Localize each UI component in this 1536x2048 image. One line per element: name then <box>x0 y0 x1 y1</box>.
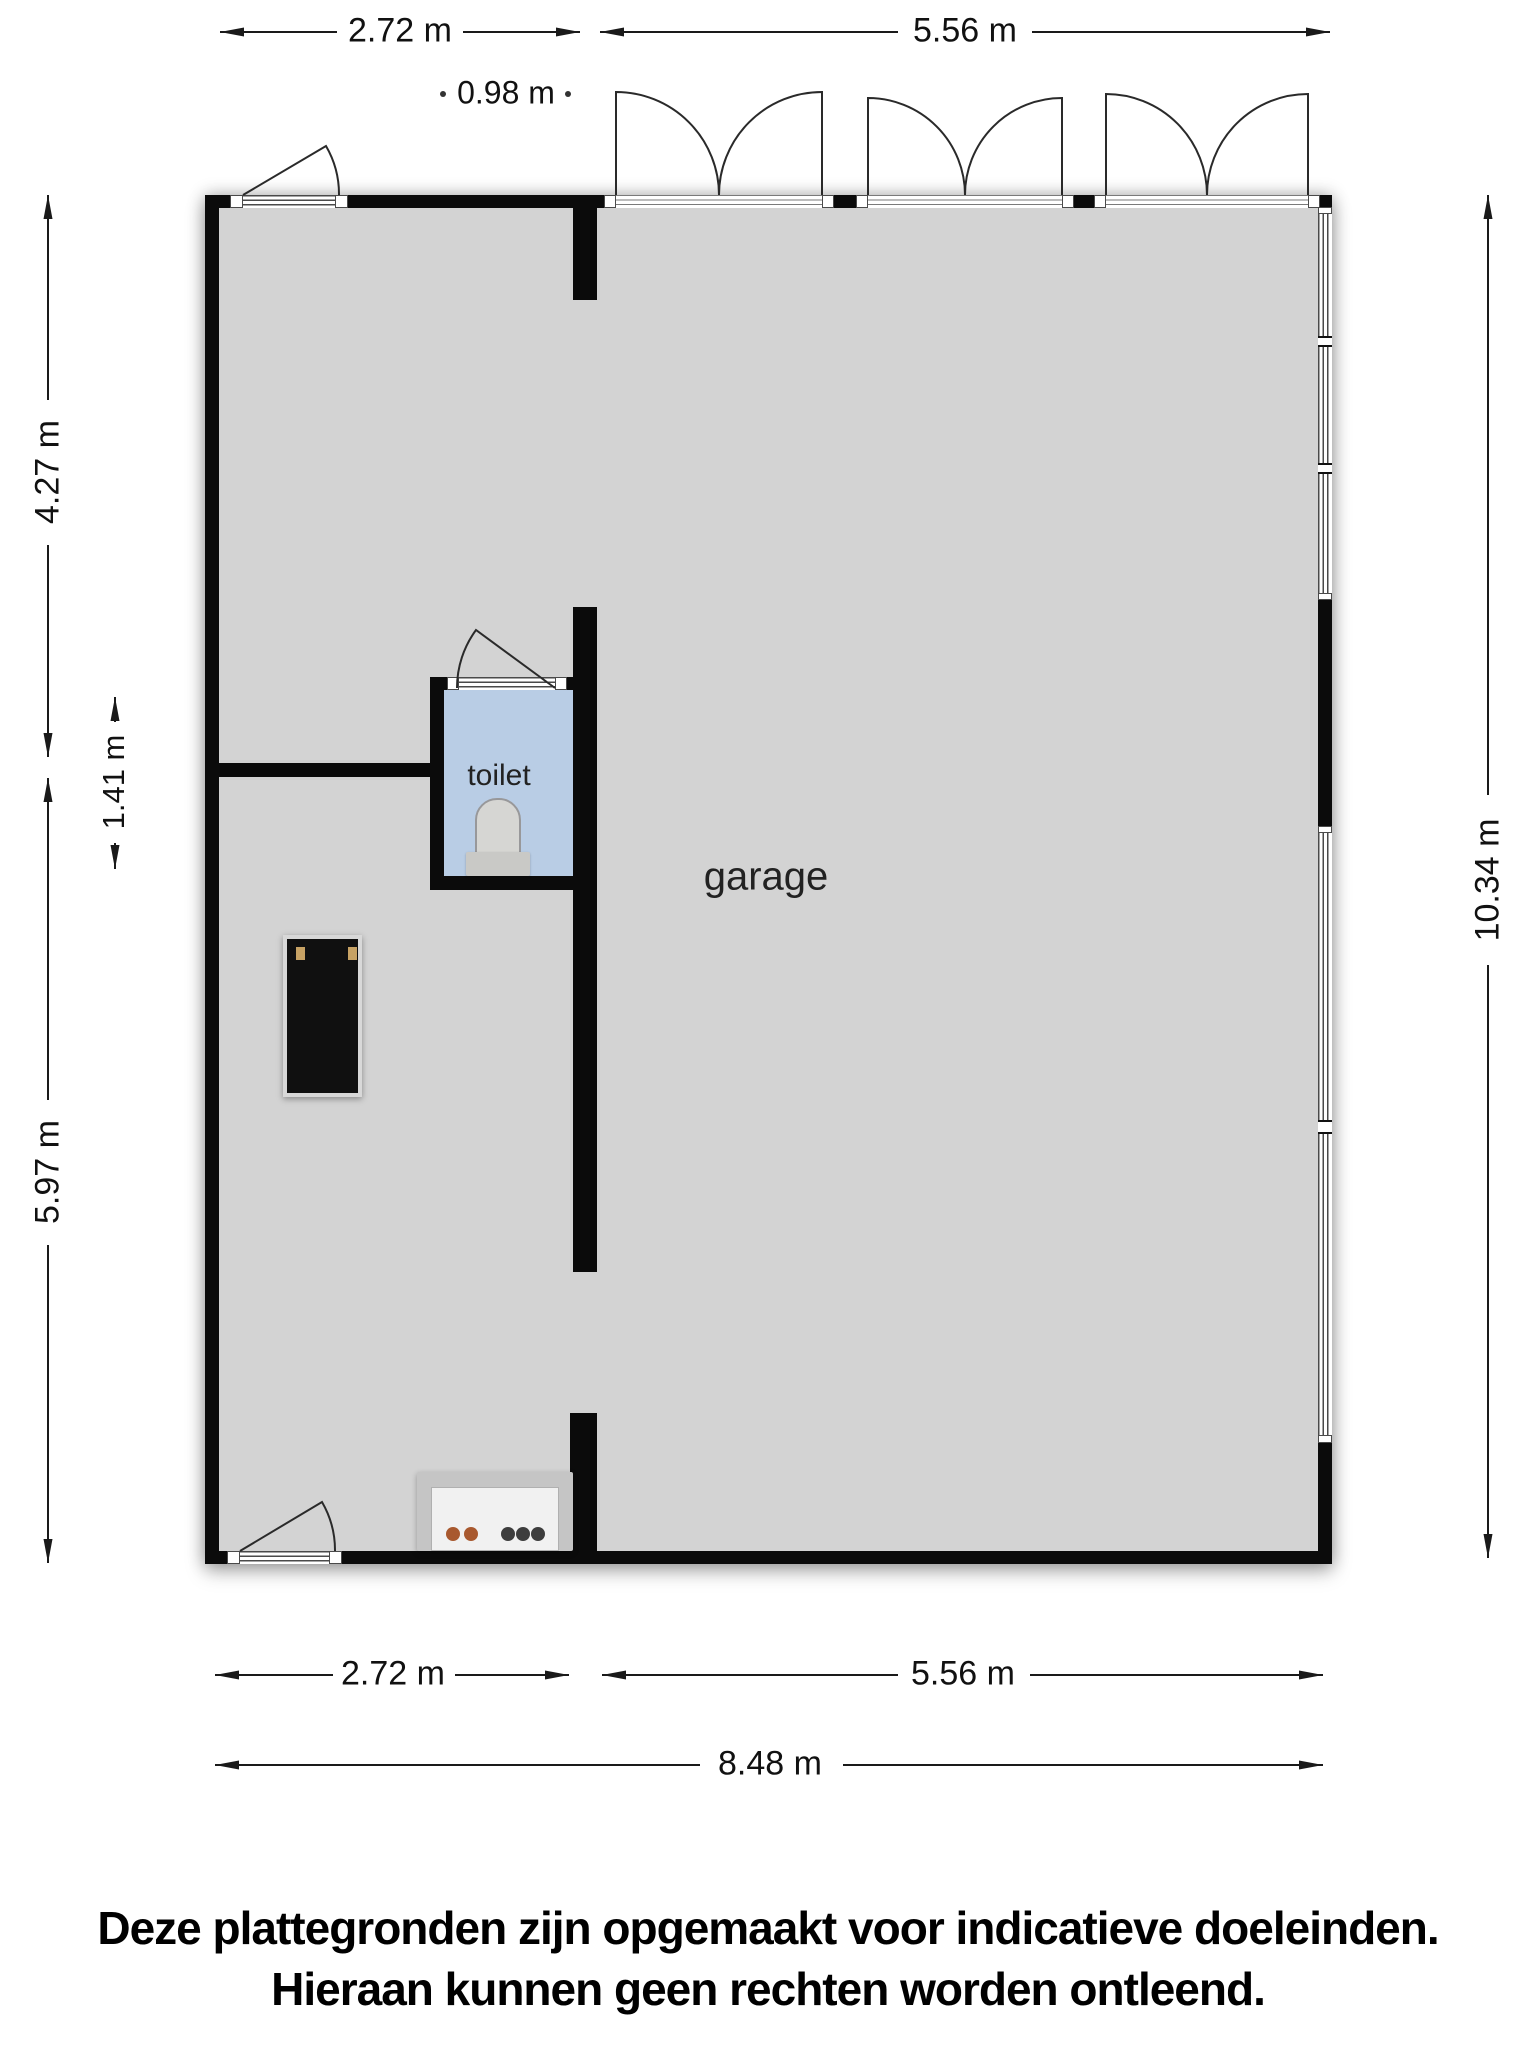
back-door-swing-arc <box>240 1502 335 1551</box>
toilet-door-swing-arc <box>457 630 555 688</box>
dim-bottom-left: 2.72 m <box>335 1655 451 1694</box>
garage-door3-left-swing <box>1106 94 1207 195</box>
dim-bottom-right: 5.56 m <box>905 1655 1021 1694</box>
footer-line-1: Deze plattegronden zijn opgemaakt voor i… <box>0 1898 1536 1959</box>
dim-bottom-total: 8.48 m <box>712 1745 828 1784</box>
plan-linework <box>0 0 1536 2048</box>
dim-left-lower: 5.97 m <box>29 1114 68 1230</box>
dim-left-toilet: 1.41 m <box>96 729 132 836</box>
footer-disclaimer: Deze plattegronden zijn opgemaakt voor i… <box>0 1898 1536 2020</box>
entry-door-swing-arc <box>243 146 339 195</box>
dim-top-left: 2.72 m <box>342 12 458 51</box>
room-label-garage: garage <box>704 855 829 900</box>
garage-door1-right-swing <box>719 92 822 195</box>
garage-door2-left-swing <box>868 98 965 195</box>
dim-dot <box>440 91 446 97</box>
floor-plan-page: garage toilet 2.72 m 5.56 m 0.98 m 4.27 … <box>0 0 1536 2048</box>
dim-dot <box>565 91 571 97</box>
dim-top-right: 5.56 m <box>907 12 1023 51</box>
dim-right-total: 10.34 m <box>1469 813 1508 948</box>
garage-door1-left-swing <box>616 92 719 195</box>
dim-top-inset: 0.98 m <box>451 75 561 112</box>
dim-left-upper: 4.27 m <box>29 414 68 530</box>
garage-door3-right-swing <box>1207 94 1308 195</box>
room-label-toilet: toilet <box>467 759 530 793</box>
garage-door2-right-swing <box>965 98 1062 195</box>
footer-line-2: Hieraan kunnen geen rechten worden ontle… <box>0 1959 1536 2020</box>
